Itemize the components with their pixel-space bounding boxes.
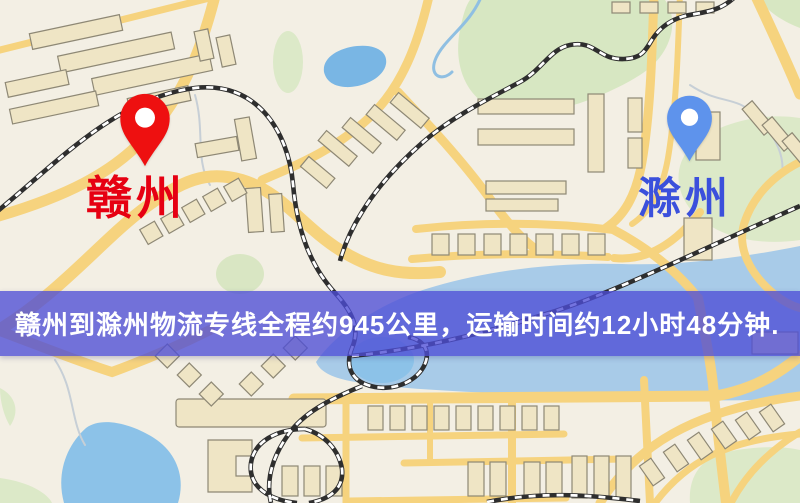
logistics-route-map: 赣州 滁州 赣州到滁州物流专线全程约945公里，运输时间约12小时48分钟. [0, 0, 800, 503]
destination-city-label: 滁州 [638, 178, 732, 221]
route-summary-text: 赣州到滁州物流专线全程约945公里，运输时间约12小时48分钟. [0, 305, 779, 342]
origin-pin-icon [116, 92, 174, 168]
origin-city-label: 赣州 [86, 176, 186, 222]
map-canvas [0, 0, 800, 503]
destination-pin-icon [663, 94, 716, 163]
route-summary-banner: 赣州到滁州物流专线全程约945公里，运输时间约12小时48分钟. [0, 291, 800, 356]
